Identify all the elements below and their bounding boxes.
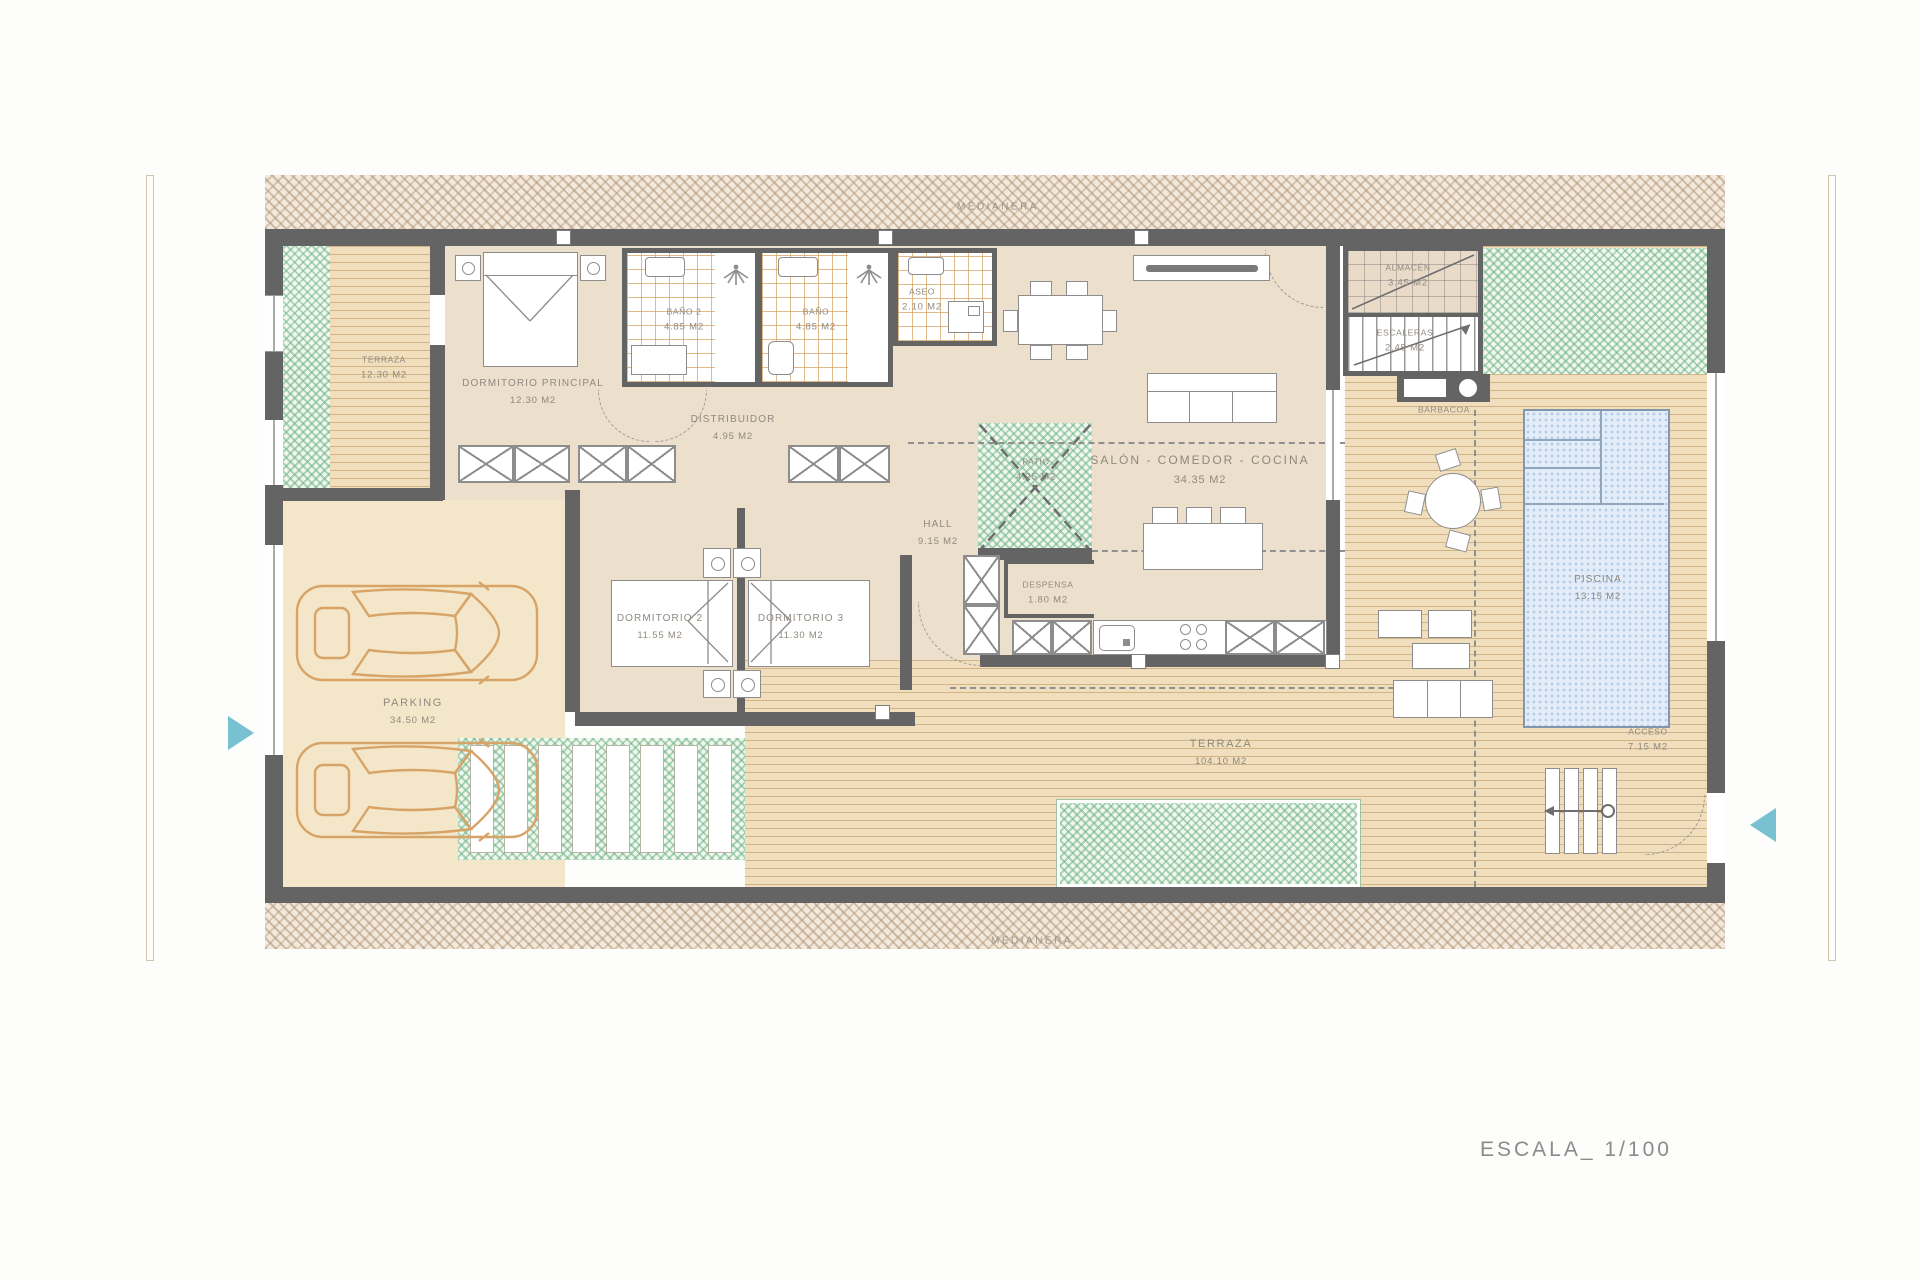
nightstand [733, 548, 761, 578]
wall-bedrooms-bottom [575, 712, 915, 726]
room-label-parking: PARKING34.50 m2 [383, 694, 443, 730]
sofa [1147, 373, 1277, 423]
wall-bottom [265, 887, 1725, 903]
room-label-dormitorio3: DORMITORIO 311.30 m2 [758, 610, 844, 644]
kitchen-cabinet [1052, 620, 1092, 655]
window-left-terrace [265, 295, 283, 352]
room-label-piscina: PISCINA13.15 m2 [1574, 571, 1622, 605]
room-label-escaleras: ESCALERAS2.45 m2 [1377, 325, 1433, 357]
nightstand [455, 255, 481, 281]
post [1134, 230, 1149, 245]
room-label-dormitorio2: DORMITORIO 211.55 m2 [617, 610, 703, 644]
kitchen-cabinet [1012, 620, 1052, 655]
kitchen-cabinet [1275, 620, 1325, 655]
room-label-despensa: DESPENSA1.80 m2 [1022, 577, 1073, 609]
post [1325, 654, 1340, 669]
wall-salon-bottom [980, 655, 1327, 667]
pergola-slat [708, 745, 732, 853]
toilet [768, 341, 794, 375]
dining-chair [1066, 345, 1088, 360]
outdoor-chair [1480, 487, 1502, 512]
pergola-slat [606, 745, 630, 853]
right-guide-line [1828, 175, 1836, 961]
window-left-terrace2 [265, 420, 283, 485]
double-bed [483, 252, 578, 367]
wardrobe [627, 445, 676, 483]
wardrobe [458, 445, 514, 483]
room-label-dormitorio-principal: DORMITORIO PRINCIPAL12.30 m2 [462, 375, 604, 409]
wall-hall-left [900, 555, 912, 690]
post [878, 230, 893, 245]
car-top-view [293, 578, 541, 688]
overhang-dash-line [908, 442, 1345, 444]
access-arrow-icon [228, 716, 254, 750]
dining-chair [1003, 310, 1018, 332]
garden-top-right [1484, 248, 1707, 374]
stair-direction-arrow [1540, 798, 1620, 824]
dining-chair [1030, 281, 1052, 296]
kitchen-cabinet [1225, 620, 1275, 655]
tall-cabinet [963, 605, 1000, 655]
garage-door-opening [265, 545, 283, 755]
room-label-bano: BAÑO4.85 m2 [796, 304, 836, 336]
porch-dash-line [1474, 410, 1476, 887]
washing-machine [948, 301, 984, 333]
wall-top [265, 229, 1725, 246]
nightstand [703, 670, 731, 698]
post [556, 230, 571, 245]
sink [908, 257, 944, 275]
room-label-acceso: ACCESO7.15 m2 [1628, 724, 1668, 756]
room-label-patio: PATIO4.25 m2 [1016, 454, 1056, 486]
wardrobe [788, 445, 839, 483]
room-label-salon: SALÓN - COMEDOR - COCINA34.35 m2 [1090, 450, 1309, 490]
post [875, 705, 890, 720]
shower-icon [854, 261, 884, 291]
barbacoa-unit [1397, 374, 1490, 402]
pergola-slat [640, 745, 664, 853]
post [1131, 654, 1146, 669]
wardrobe [514, 445, 570, 483]
pergola-slat [572, 745, 596, 853]
outdoor-round-table [1425, 473, 1481, 529]
floor-plan-sheet: MEDIANERA MEDIANERA TERRAZA12.30 m2 DORM… [0, 0, 1920, 1280]
window-salon-right [1326, 390, 1340, 500]
access-door-opening [1707, 793, 1725, 863]
lounge-table [1412, 643, 1470, 669]
bathtub [631, 345, 687, 375]
dining-chair [1102, 310, 1117, 332]
party-wall-label-top: MEDIANERA [957, 202, 1039, 213]
party-wall-label-bottom: MEDIANERA [991, 936, 1073, 947]
wardrobe [839, 445, 890, 483]
wall-dorm-ppal-left [430, 246, 445, 500]
wall-parking-bedrooms [565, 490, 580, 712]
window-dorm-ppal [430, 295, 445, 345]
kitchen-island [1143, 523, 1263, 570]
lounge-seat [1378, 610, 1422, 638]
wall-terrace-parking [268, 488, 443, 501]
room-label-barbacoa: BARBACOA [1418, 403, 1470, 418]
lounge-sofa [1393, 680, 1493, 718]
room-label-hall: HALL9.15 m2 [918, 516, 958, 550]
dining-chair [1066, 281, 1088, 296]
window-right-glass [1707, 373, 1725, 641]
lawn-bottom [1057, 800, 1360, 887]
tv-sideboard [1133, 255, 1270, 281]
left-guide-line [146, 175, 154, 961]
sink [645, 257, 685, 277]
pool [1523, 409, 1670, 728]
room-label-terraza-left: TERRAZA12.30 m2 [361, 352, 407, 384]
car-top-view [293, 735, 541, 845]
sink [778, 257, 818, 277]
nightstand [703, 548, 731, 578]
kitchen-sink [1099, 625, 1135, 651]
room-label-distribuidor: DISTRIBUIDOR4.95 m2 [691, 411, 776, 445]
access-arrow-icon [1750, 808, 1776, 842]
nightstand [733, 670, 761, 698]
room-label-almacen: ALMACÉN3.45 m2 [1385, 260, 1430, 292]
cooktop [1180, 623, 1212, 652]
room-label-aseo: ASEO2.10 m2 [902, 284, 942, 316]
room-label-bano2: BAÑO 24.85 m2 [664, 304, 704, 336]
room-label-terraza-main: TERRAZA104.10 m2 [1190, 735, 1253, 771]
pergola-slat [538, 745, 562, 853]
lounge-seat [1428, 610, 1472, 638]
dining-table [1018, 295, 1103, 345]
scale-label: ESCALA_ 1/100 [1480, 1138, 1672, 1162]
tall-cabinet [963, 555, 1000, 605]
pergola-slat [674, 745, 698, 853]
nightstand [580, 255, 606, 281]
wardrobe [578, 445, 627, 483]
shower-icon [721, 261, 751, 291]
dining-chair [1030, 345, 1052, 360]
